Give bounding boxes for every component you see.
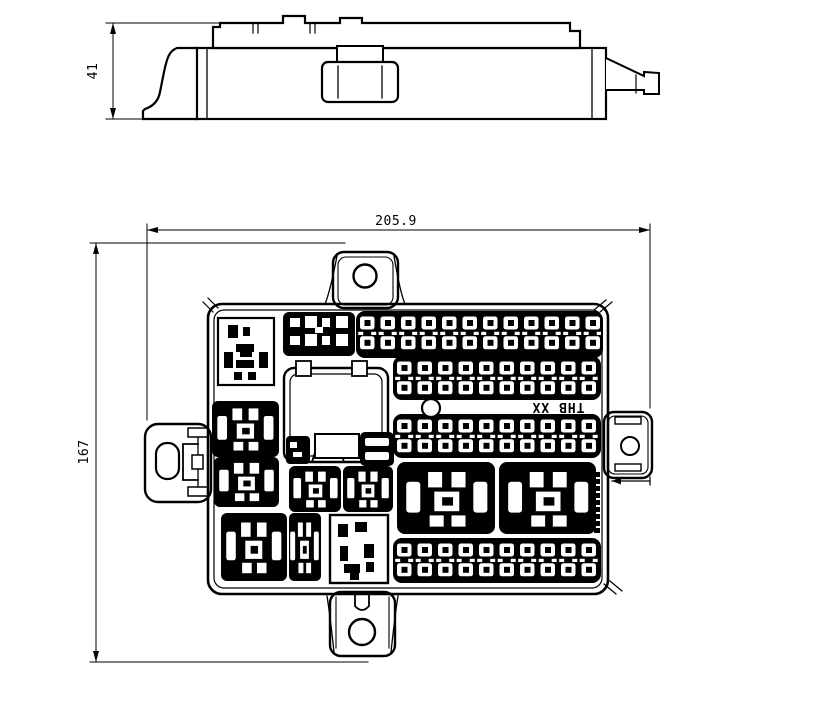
relay-socket-bottomleft-2 xyxy=(289,513,321,581)
tab-hole xyxy=(349,619,375,645)
mounting-tab-bottom xyxy=(327,592,398,656)
part-marking-text: THB XX xyxy=(532,399,585,414)
relay-socket-left-2 xyxy=(214,457,279,507)
tab-slot xyxy=(156,443,179,479)
dim-arrow xyxy=(93,651,99,662)
side-elevation-view: 41 xyxy=(86,16,659,119)
tab-hole xyxy=(354,265,377,288)
relay-socket-right-2 xyxy=(499,462,596,534)
connector-block-top xyxy=(283,312,355,356)
fuse-array-row3 xyxy=(394,415,600,457)
relay-socket-outline-bottom xyxy=(330,515,388,583)
small-socket-left-of-bay xyxy=(286,436,310,464)
dim-text-overall-width: 205.9 xyxy=(375,214,417,229)
relay-socket-mid-1 xyxy=(289,466,341,512)
dim-arrow xyxy=(110,108,116,119)
dim-arrow xyxy=(110,23,116,34)
bay-clip xyxy=(352,361,367,376)
tab-hole xyxy=(621,437,639,455)
side-mounting-foot xyxy=(143,48,197,119)
relay-socket-left-1 xyxy=(212,401,279,457)
two-slot-connector xyxy=(360,432,394,466)
drawing-canvas: 41 205.9 167 xyxy=(0,0,828,703)
small-bay xyxy=(315,434,359,458)
side-connector-top xyxy=(337,46,383,62)
plan-view: 205.9 167 xyxy=(77,214,652,662)
relay-socket-mid-2 xyxy=(343,466,393,512)
mounting-tab-right xyxy=(604,412,652,478)
part-number-marking xyxy=(594,472,600,533)
bay-clip xyxy=(296,361,311,376)
side-right-bracket xyxy=(606,58,659,94)
dim-arrow xyxy=(93,243,99,254)
fuse-array-row4 xyxy=(394,539,600,582)
side-body-base xyxy=(195,48,606,119)
relay-socket-right-1 xyxy=(397,462,495,534)
mounting-tab-top xyxy=(325,252,405,308)
side-cover-profile xyxy=(213,16,580,48)
relay-socket-outline-topleft xyxy=(218,318,274,385)
relay-socket-bottomleft-1 xyxy=(221,513,287,581)
dim-arrow xyxy=(147,227,158,233)
dim-arrow xyxy=(639,227,650,233)
fuse-array-row1 xyxy=(357,312,602,357)
technical-drawing: 41 205.9 167 xyxy=(0,0,828,703)
dim-text-overall-height: 167 xyxy=(77,440,92,465)
side-connector-body xyxy=(322,62,398,102)
vent-hole xyxy=(422,399,440,417)
dim-text-side-height: 41 xyxy=(86,63,101,80)
fuse-array-row2 xyxy=(394,357,600,399)
mounting-tab-left xyxy=(145,424,211,502)
